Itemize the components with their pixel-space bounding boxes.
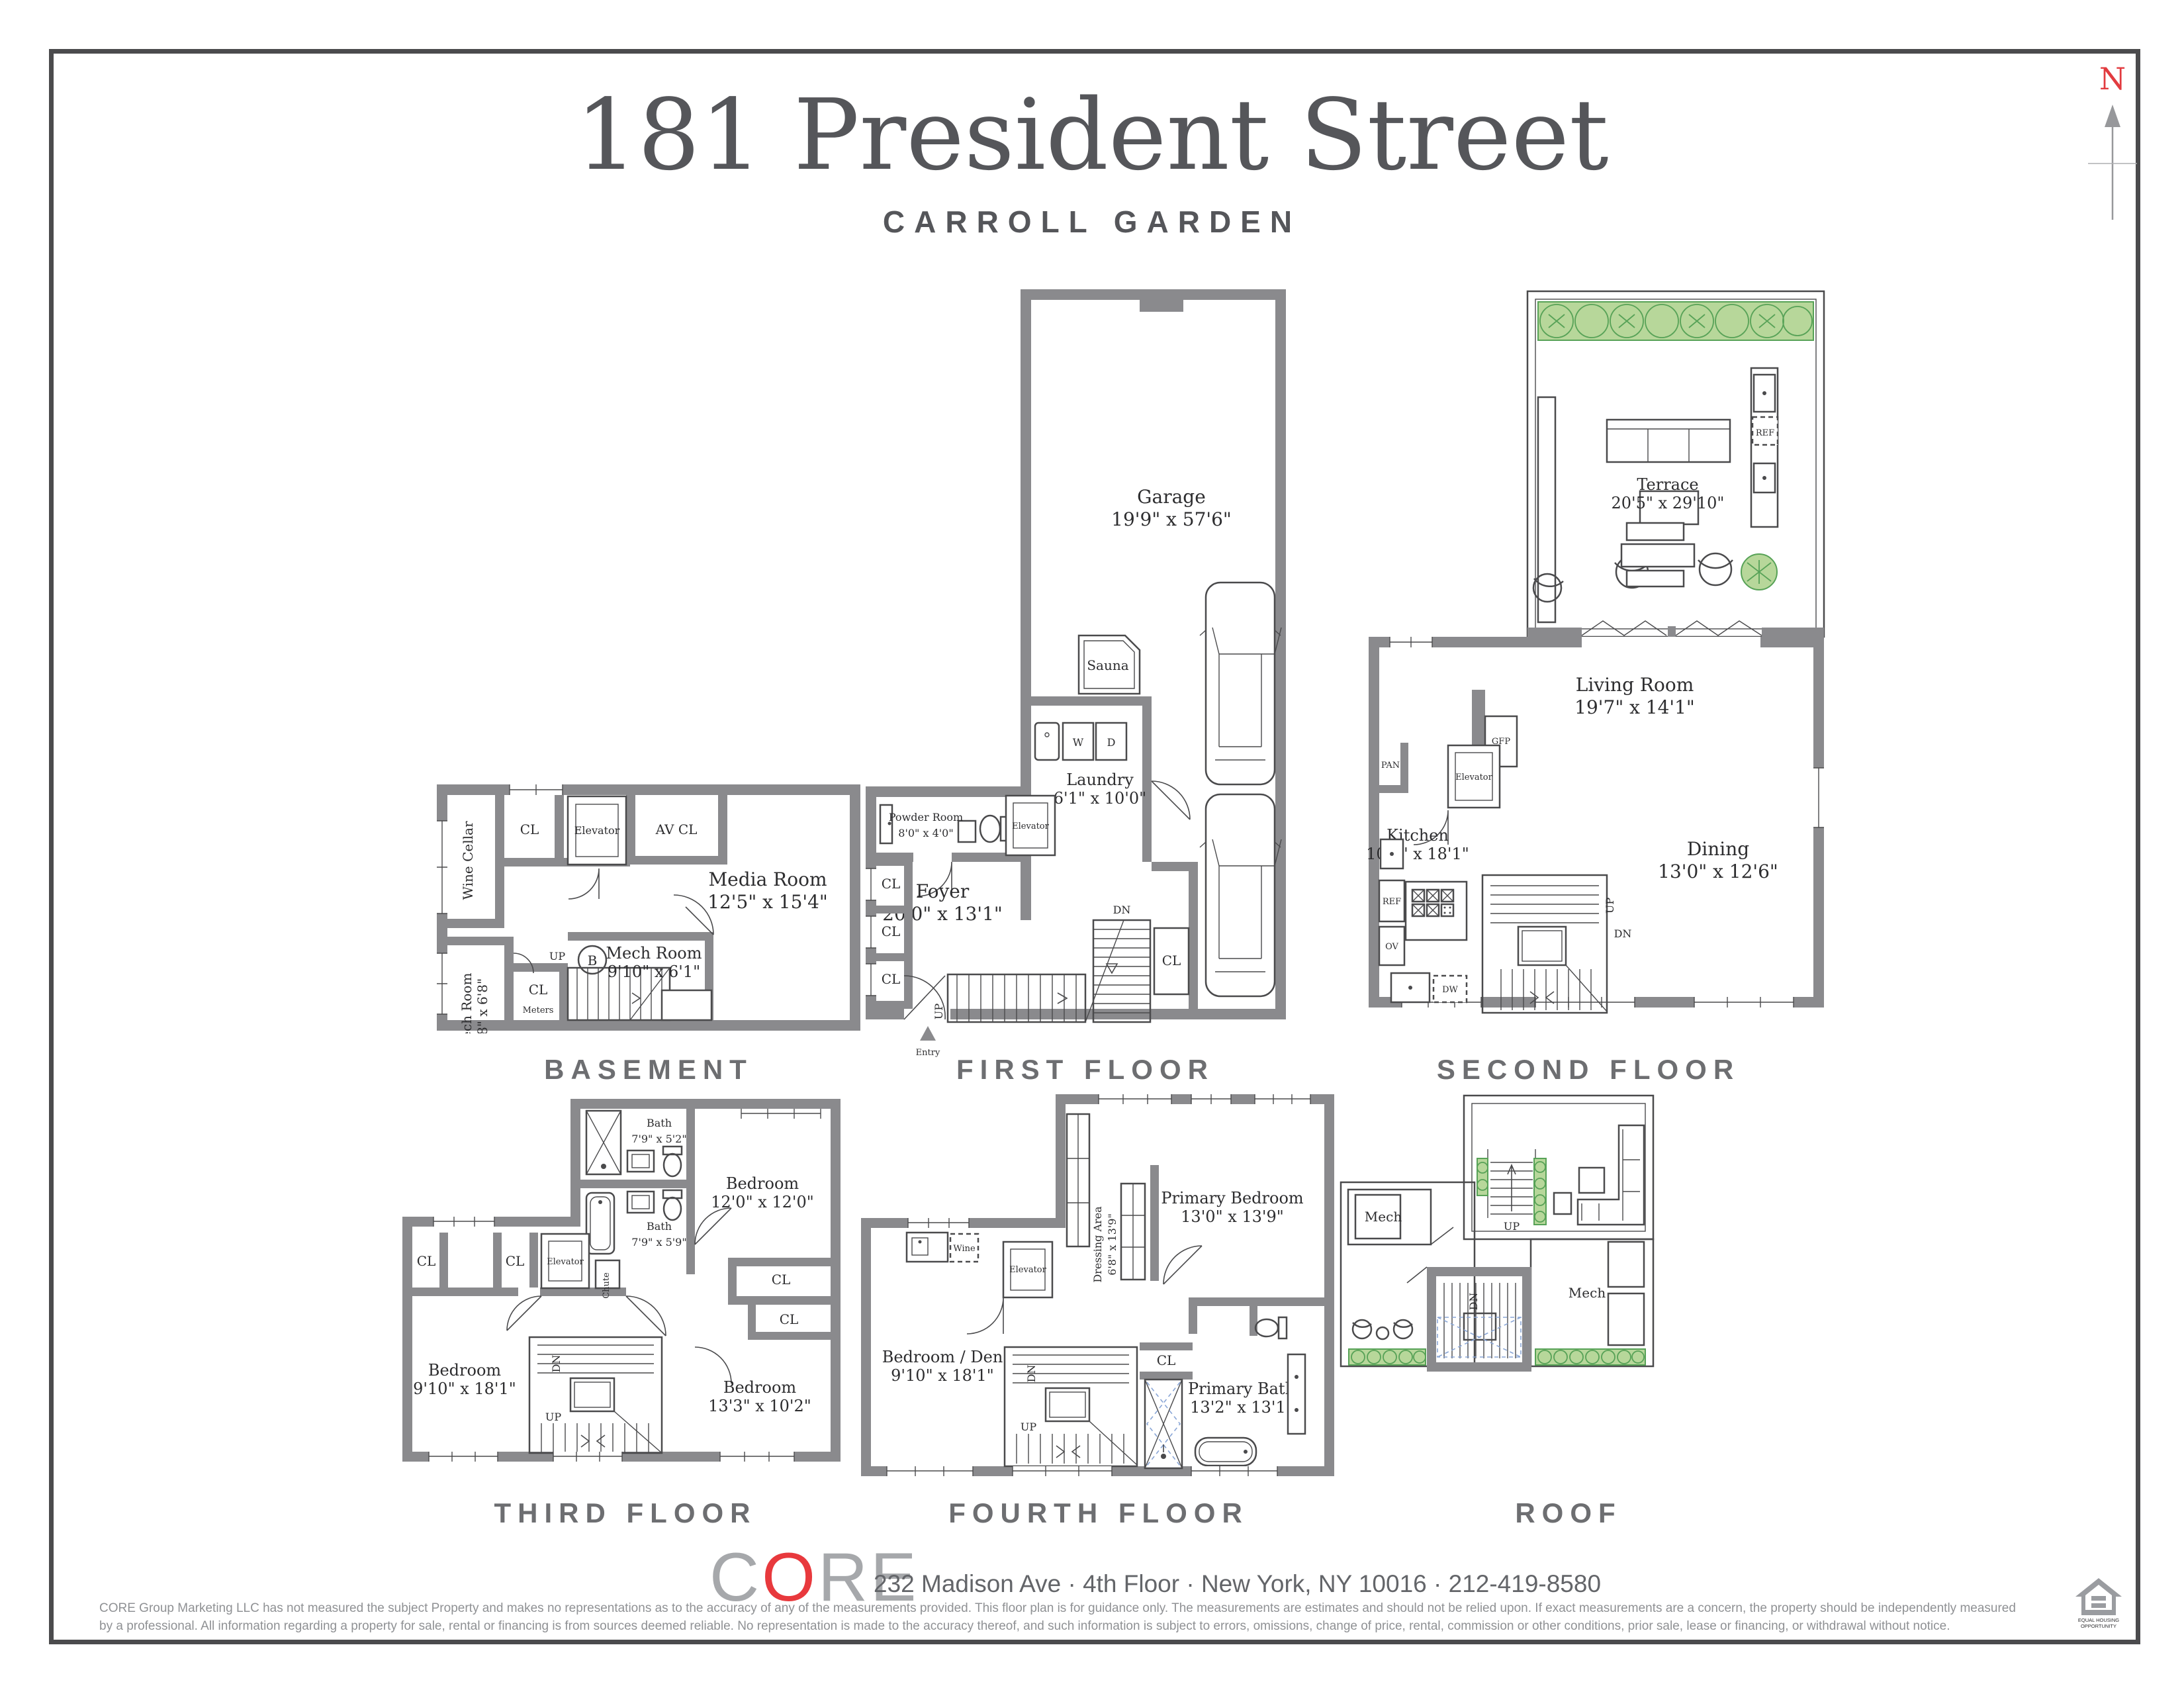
media-room-label: Media Room — [708, 868, 827, 890]
bedroom2-dims: 9'10" x 18'1" — [413, 1380, 516, 1398]
bath1-dims: 7'9" x 5'2" — [631, 1133, 686, 1145]
stairs-dn-label: DN — [1025, 1365, 1038, 1383]
roof-unit — [1608, 1242, 1644, 1287]
primary-bath-dims: 13'2" x 13'1" — [1190, 1398, 1293, 1417]
wine-label: Wine — [953, 1244, 976, 1254]
fourth-floor-label: FOURTH FLOOR — [948, 1497, 1249, 1529]
sauna-room: Sauna — [1079, 635, 1140, 694]
bathtub-icon — [1195, 1438, 1256, 1466]
garage-dims: 19'9" x 57'6" — [1111, 508, 1232, 530]
stairs-dn-label: DN — [1467, 1293, 1480, 1311]
primary-bath-label: Primary Bath — [1188, 1380, 1295, 1398]
roof-floorplan: Mech UP DN — [1340, 1094, 1659, 1379]
roof-unit — [1608, 1293, 1644, 1345]
bath2-label: Bath — [647, 1220, 672, 1233]
terrace-dims: 20'5" x 29'10" — [1612, 494, 1725, 512]
car-icon — [1200, 583, 1281, 784]
shower-icon — [1145, 1380, 1182, 1468]
av-closet-label: AV CL — [655, 821, 698, 837]
oven-label: OV — [1385, 942, 1398, 952]
ref-label: REF — [1383, 897, 1401, 907]
stairs-up-label: UP — [1504, 1220, 1520, 1233]
elevator-icon: Elevator — [1006, 796, 1055, 855]
bathtub-icon — [586, 1193, 614, 1254]
elevator-icon: Elevator — [568, 796, 626, 865]
basement-floorplan: Elevator Wine Cellar CL AV CL Media Room… — [437, 784, 862, 1033]
primary-bedroom-dims: 13'0" x 13'9" — [1181, 1207, 1284, 1226]
mech-room-left: Mech — [1348, 1190, 1453, 1244]
second-floorplan: Terrace 20'5" x 29'10" REF — [1367, 289, 1827, 1031]
terrace: Terrace 20'5" x 29'10" REF — [1527, 291, 1824, 638]
closet-label: CL — [882, 923, 901, 939]
toilet-icon — [980, 816, 1000, 842]
office-address: 232 Madison Ave · 4th Floor · New York, … — [874, 1570, 1601, 1598]
door-arc — [626, 1296, 666, 1336]
stairs-up-label: UP — [933, 1004, 945, 1019]
chute-label: Chute — [602, 1272, 612, 1299]
disclaimer-text: CORE Group Marketing LLC has not measure… — [99, 1599, 2016, 1635]
elevator-label: Elevator — [1455, 773, 1492, 782]
wet-bar: Wine — [907, 1233, 978, 1262]
sink-icon — [627, 1150, 654, 1172]
dishwasher-label: DW — [1442, 985, 1458, 995]
first-floorplan: Garage 19'9" x 57'6" Sauna W D Laundry 6… — [866, 289, 1287, 1062]
stairs-up-label: UP — [1604, 898, 1616, 914]
disclaimer-line2: by a professional. All information regar… — [99, 1617, 2016, 1635]
toilet-icon — [663, 1190, 682, 1220]
mech-room-dims: 9'10" x 6'1" — [608, 962, 700, 981]
disclaimer-line1: CORE Group Marketing LLC has not measure… — [99, 1599, 2016, 1617]
toilet-icon — [663, 1147, 682, 1176]
bedroom-den-dims: 9'10" x 18'1" — [891, 1366, 994, 1385]
powder-room-label: Powder Room — [889, 811, 963, 823]
door-arc — [695, 1208, 731, 1244]
sauna-label: Sauna — [1087, 657, 1128, 673]
plant-icon — [1741, 554, 1777, 590]
dressing-area-dims: 6'8" x 13'9" — [1106, 1213, 1118, 1276]
compass-n-label: N — [2099, 61, 2126, 97]
first-floor-windows — [866, 868, 876, 996]
terrace-tables — [1621, 523, 1694, 586]
laundry-label: Laundry — [1066, 771, 1134, 789]
closet-label: CL — [882, 971, 901, 987]
living-room-dims: 19'7" x 14'1" — [1574, 696, 1695, 718]
first-floor-label: FIRST FLOOR — [956, 1054, 1214, 1086]
bedroom3-label: Bedroom — [723, 1378, 797, 1397]
dining-dims: 13'0" x 12'6" — [1658, 861, 1778, 882]
mech-room-label: Mech Room — [606, 944, 702, 962]
page-subtitle: CARROLL GARDEN — [883, 204, 1301, 240]
north-compass-icon: N — [2071, 61, 2158, 226]
elevator-icon: Elevator — [1448, 745, 1500, 808]
third-floorplan: Bath 7'9" x 5'2" Bedroom 12'0" x 12'0" B… — [402, 1099, 854, 1464]
boiler-label: B — [588, 953, 598, 968]
stairs-icon: DN UP — [529, 1337, 662, 1453]
toilet-icon — [1255, 1317, 1287, 1338]
laundry-sink-icon — [1035, 723, 1059, 760]
closet-label: CL — [780, 1311, 799, 1327]
kitchen-appliances: REF OV DW — [1379, 839, 1467, 1002]
floorplan-sheet: 181 President Street CARROLL GARDEN N — [0, 0, 2184, 1688]
sink-icon — [627, 1192, 654, 1213]
closet-label: CL — [882, 876, 901, 892]
bedroom1-label: Bedroom — [726, 1174, 799, 1193]
elevator-label: Elevator — [547, 1257, 584, 1267]
entry-label: Entry — [916, 1048, 940, 1058]
second-floor-label: SECOND FLOOR — [1437, 1054, 1740, 1086]
primary-bedroom-label: Primary Bedroom — [1161, 1189, 1304, 1207]
mech-room-small-dims: 4'8" x 6'8" — [475, 978, 490, 1033]
roof-stairs-up: UP — [1488, 1149, 1535, 1233]
washer-label: W — [1073, 736, 1084, 749]
vanity-icon — [1288, 1354, 1305, 1434]
bedroom-den-label: Bedroom / Den — [882, 1348, 1003, 1366]
page-title: 181 President Street — [575, 78, 1608, 192]
car-icon — [1200, 794, 1281, 996]
wine-cellar-label: Wine Cellar — [460, 821, 476, 900]
stairs-dn-label: DN — [550, 1355, 563, 1373]
mech-equipment — [662, 990, 711, 1020]
bedroom3-dims: 13'3" x 10'2" — [708, 1397, 811, 1415]
meters-closet-label: CL — [529, 982, 548, 998]
bedroom2-label: Bedroom — [428, 1361, 502, 1380]
outdoor-kitchen: REF — [1751, 368, 1778, 527]
sofa-icon — [1607, 420, 1730, 462]
round-chair-icon — [1698, 553, 1733, 585]
elevator-icon: Elevator — [541, 1234, 589, 1288]
powder-room-dims: 8'0" x 4'0" — [898, 827, 953, 839]
elevator-label: Elevator — [1012, 821, 1049, 831]
garage-label: Garage — [1137, 486, 1206, 508]
mech-room-small-label: Mech Room — [459, 973, 475, 1033]
third-floor-label: THIRD FLOOR — [494, 1497, 757, 1529]
fourth-floor-windows — [887, 1094, 1310, 1476]
dressing-area-label: Dressing Area — [1091, 1206, 1104, 1283]
closet-label: CL — [772, 1272, 791, 1288]
stairs-dn-label: DN — [1113, 904, 1131, 916]
dining-label: Dining — [1687, 838, 1749, 860]
basement-label: BASEMENT — [544, 1054, 753, 1086]
eho-text2: OPPORTUNITY — [2081, 1623, 2116, 1629]
pantry-label: PAN — [1381, 761, 1400, 771]
door-arc — [967, 1297, 1003, 1334]
stairs-up-label: UP — [545, 1411, 561, 1423]
foyer-label: Foyer — [916, 880, 970, 902]
stairs-up-label: UP — [549, 950, 565, 962]
media-room-dims: 12'5" x 15'4" — [707, 891, 828, 913]
eho-text1: EQUAL HOUSING — [2078, 1617, 2119, 1623]
door-arc — [569, 868, 599, 899]
door-arc — [1152, 781, 1190, 820]
elevator-label: Elevator — [574, 824, 620, 837]
mech-right-label: Mech — [1569, 1285, 1606, 1301]
dryer-label: D — [1107, 736, 1116, 749]
equal-housing-logo: EQUAL HOUSING OPPORTUNITY — [2075, 1578, 2122, 1633]
terrace-label: Terrace — [1637, 475, 1698, 494]
fourth-floorplan: Dressing Area 6'8" x 13'9" Primary Bedro… — [861, 1094, 1334, 1476]
roof-chairs — [1353, 1320, 1412, 1339]
laundry-dims: 6'1" x 10'0" — [1054, 789, 1146, 808]
closet-label: CL — [417, 1253, 436, 1269]
bath1-label: Bath — [647, 1117, 672, 1129]
door-arc — [507, 1296, 541, 1331]
folding-doors — [1527, 621, 1824, 638]
shower-icon — [586, 1111, 621, 1174]
closet-label: CL — [1157, 1352, 1176, 1368]
elevator-icon: Elevator — [1003, 1242, 1052, 1297]
stairs-icon: DN UP — [1005, 1347, 1137, 1466]
roof-label: ROOF — [1515, 1497, 1621, 1529]
ref-label: REF — [1756, 428, 1774, 438]
mech-left-label: Mech — [1365, 1209, 1402, 1225]
meters-label: Meters — [523, 1006, 554, 1015]
elevator-label: Elevator — [1009, 1265, 1046, 1275]
sofa-icon — [1554, 1125, 1644, 1225]
stairs-icon: UP DN — [1482, 875, 1631, 1013]
stairs-up-label: UP — [1021, 1421, 1036, 1433]
closet-label: CL — [1162, 953, 1181, 968]
bench — [1538, 397, 1555, 622]
living-room-label: Living Room — [1576, 674, 1694, 696]
powder-room: Powder Room 8'0" x 4'0" — [880, 805, 1009, 843]
door-arc — [1163, 1246, 1202, 1284]
bath2-dims: 7'9" x 5'9" — [631, 1236, 686, 1248]
closet-label: CL — [506, 1253, 525, 1269]
closet-label: CL — [520, 821, 539, 837]
stairs-dn-label: DN — [1614, 927, 1632, 940]
